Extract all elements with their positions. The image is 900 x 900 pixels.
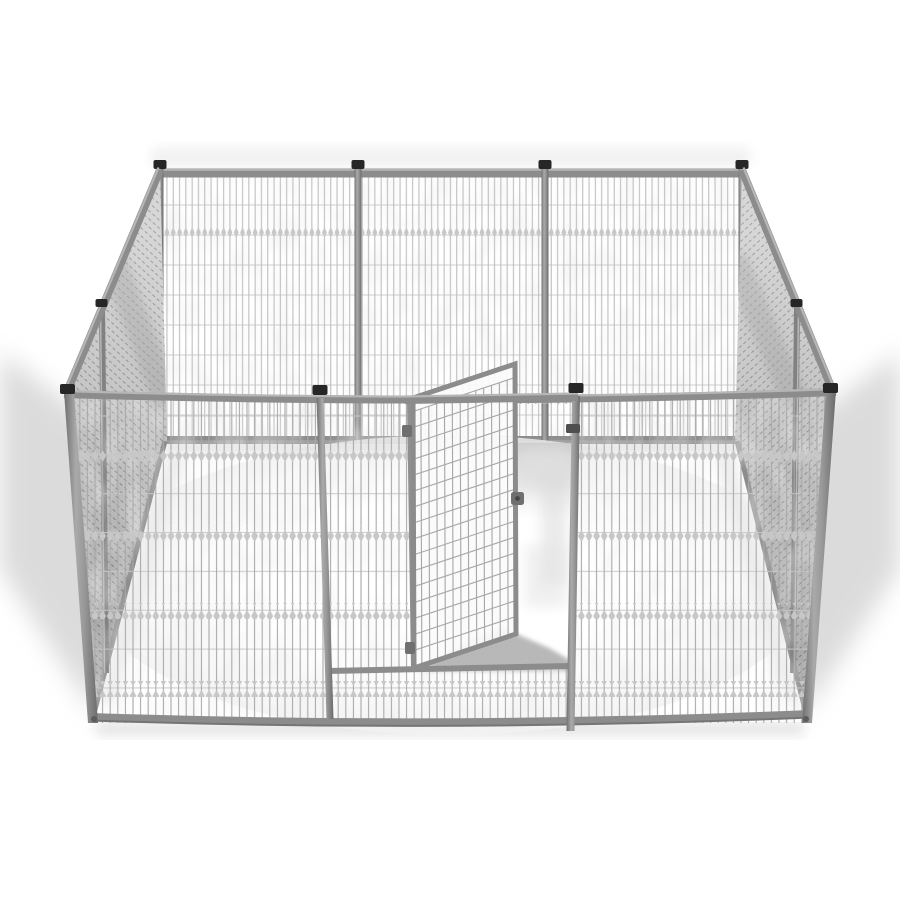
post-cap — [569, 383, 584, 393]
post-cap — [313, 385, 328, 395]
back-top-glow — [152, 148, 750, 166]
front-wall-crossing-band — [66, 681, 834, 697]
kennel-render-svg: Heavy-duty welded wire dog kennel with o… — [0, 0, 900, 900]
back-wall-crossing-band — [160, 227, 742, 242]
post-cap — [352, 160, 365, 169]
post-cap — [60, 384, 75, 394]
post-cap — [823, 383, 838, 393]
corner-foot — [803, 716, 809, 722]
post-cap — [539, 160, 552, 169]
product-image-stage: Heavy-duty welded wire dog kennel with o… — [0, 0, 900, 900]
post-cap — [154, 160, 167, 169]
gate-door-plane — [413, 364, 516, 668]
corner-foot — [91, 716, 97, 722]
post-cap — [791, 299, 803, 307]
gate-hinge-bottom — [405, 642, 415, 654]
gate-hinge-top — [402, 425, 412, 437]
front-wall-top-rail-over-door — [405, 397, 578, 400]
latch-strike-plate — [566, 424, 580, 433]
post-cap — [736, 160, 749, 169]
gate-latch-pin — [515, 496, 520, 501]
post-cap — [96, 299, 108, 307]
doorway-sheen-patch — [525, 545, 567, 607]
